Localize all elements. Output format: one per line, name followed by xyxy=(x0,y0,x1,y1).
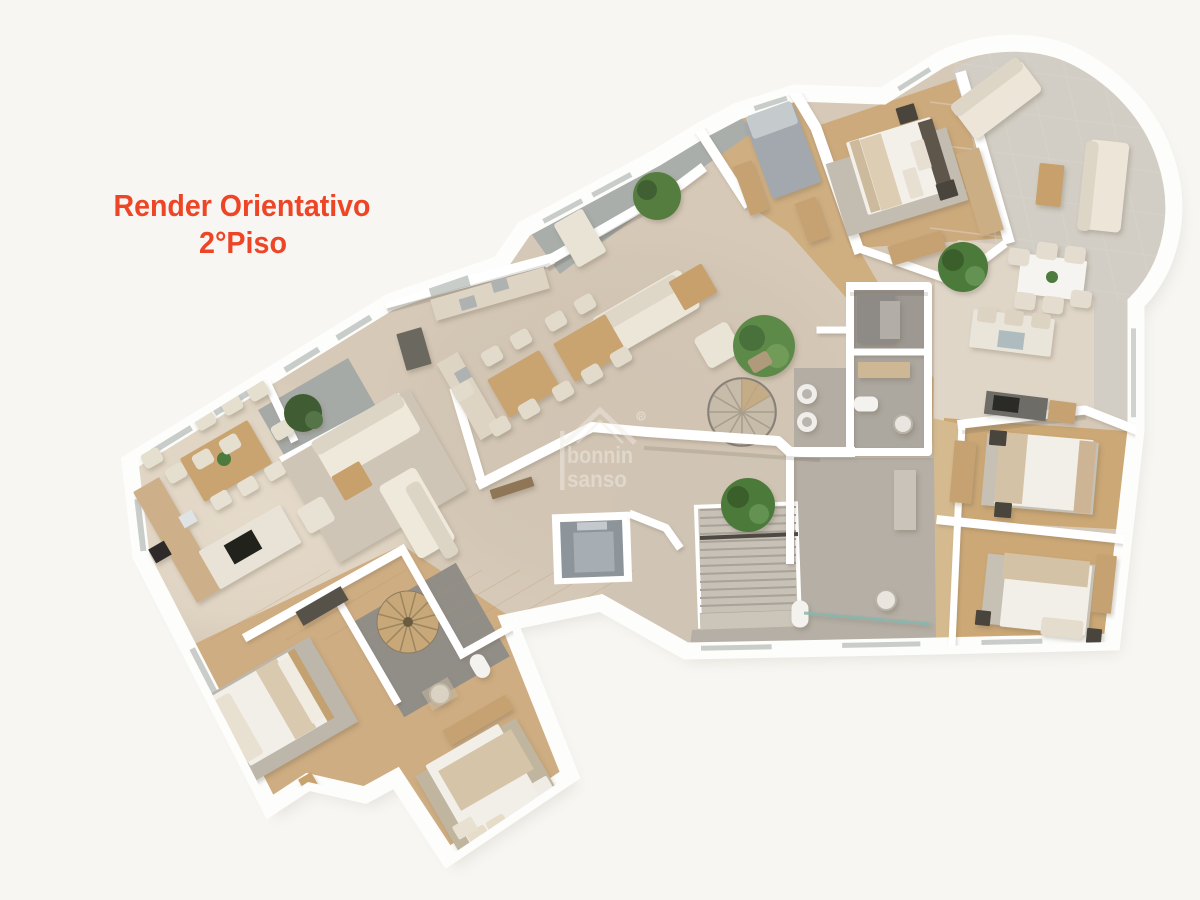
svg-text:R: R xyxy=(639,414,644,421)
svg-text:2°Piso: 2°Piso xyxy=(199,225,287,260)
svg-text:bonnin: bonnin xyxy=(567,442,633,468)
svg-text:Render Orientativo: Render Orientativo xyxy=(114,188,371,223)
svg-text:sanso: sanso xyxy=(567,466,627,492)
